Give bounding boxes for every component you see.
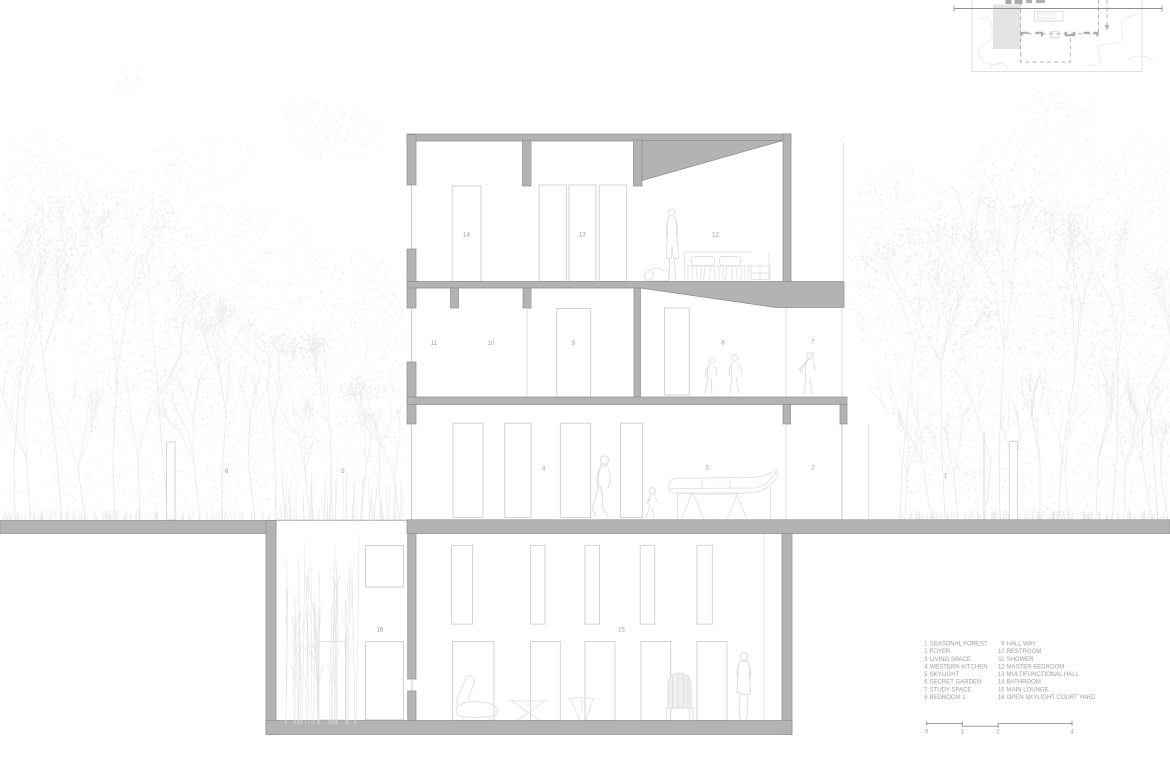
svg-text:15: 15 [998,687,1005,693]
svg-text:OPEN SKYLIGHT COURT YARD: OPEN SKYLIGHT COURT YARD [1007,695,1096,701]
svg-text:5: 5 [341,468,345,475]
svg-text:11: 11 [998,657,1005,663]
svg-text:2: 2 [811,465,815,472]
svg-text:9: 9 [572,340,576,347]
svg-text:15: 15 [618,627,625,634]
svg-text:13: 13 [579,232,586,239]
svg-text:8: 8 [721,340,725,347]
svg-text:FOYER: FOYER [930,649,951,655]
svg-text:7: 7 [811,339,815,346]
svg-text:12: 12 [998,665,1005,671]
svg-text:SECRET GARDEN: SECRET GARDEN [930,680,982,686]
svg-text:MASTER BEDROOM: MASTER BEDROOM [1007,665,1065,671]
svg-text:13: 13 [998,672,1005,678]
svg-text:10: 10 [488,340,495,347]
svg-text:BEDROOM 1: BEDROOM 1 [930,695,967,701]
svg-text:3: 3 [705,465,709,472]
svg-text:BATHROOM: BATHROOM [1007,680,1041,686]
svg-text:SHOWER: SHOWER [1007,657,1035,663]
svg-text:16: 16 [998,695,1005,701]
svg-text:4: 4 [542,466,546,473]
svg-text:RESTROOM: RESTROOM [1007,649,1042,655]
svg-text:LIVING SPACE: LIVING SPACE [930,657,971,663]
svg-text:6: 6 [225,468,229,475]
svg-text:14: 14 [998,680,1005,686]
svg-text:SEASONAL FOREST: SEASONAL FOREST [930,642,988,648]
svg-text:12: 12 [712,232,719,239]
svg-text:HALL WAY: HALL WAY [1007,642,1036,648]
svg-text:STUDY SPACE: STUDY SPACE [930,687,972,693]
svg-text:11: 11 [431,340,438,347]
svg-text:14: 14 [463,232,470,239]
svg-text:WESTERN KITCHEN: WESTERN KITCHEN [930,665,988,671]
svg-text:16: 16 [376,627,383,634]
svg-text:1: 1 [944,473,948,480]
svg-text:SKYLIGHT: SKYLIGHT [930,672,960,678]
svg-text:10: 10 [998,649,1005,655]
svg-text:MAIN LOUNGE: MAIN LOUNGE [1007,687,1049,693]
svg-text:MULTIFUNCTIONAL HALL: MULTIFUNCTIONAL HALL [1007,672,1080,678]
